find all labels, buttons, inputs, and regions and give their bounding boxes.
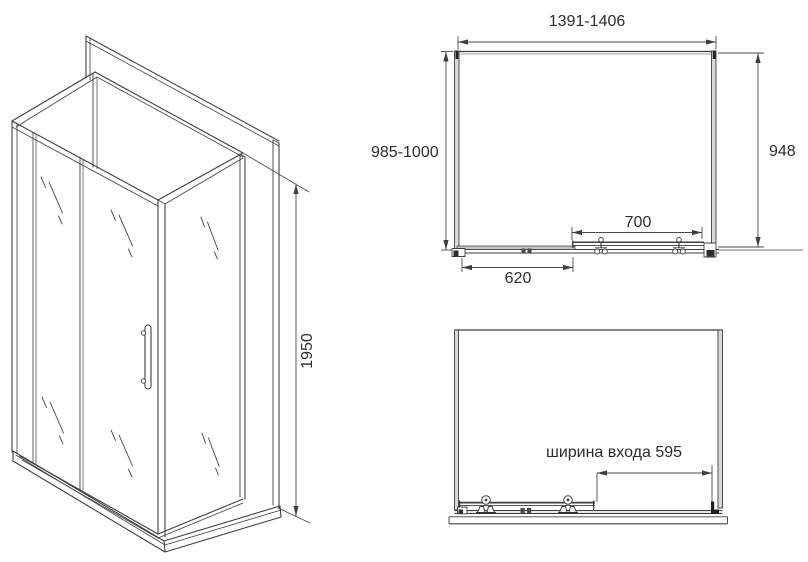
right-face-lines	[158, 153, 245, 538]
tray-lines	[13, 451, 281, 552]
front-elevation-view	[449, 330, 728, 524]
entrance-dimension-lines	[597, 465, 712, 502]
plan-width-dimension-label: 1391-1406	[549, 13, 626, 31]
front-sliding-door	[458, 501, 720, 515]
plan-door-width-dimension-label: 700	[625, 214, 652, 232]
height-dimension-label: 1950	[299, 333, 317, 369]
isometric-view	[12, 36, 310, 552]
entrance-width-dimension-label: ширина входа 595	[546, 444, 682, 462]
plan-view	[441, 36, 803, 272]
plan-fixed-panel	[452, 246, 575, 257]
back-panel-lines	[86, 36, 279, 508]
technical-drawing-page: 1391-1406 985-1000 948 700 620 ширина вх…	[0, 0, 808, 562]
front-frame	[449, 330, 728, 524]
plan-fixed-panel-dimension-label: 620	[505, 270, 532, 288]
plan-depth-dimension-label: 985-1000	[371, 144, 439, 162]
top-rim-lines	[12, 72, 243, 169]
plan-sliding-door	[572, 241, 716, 258]
door-handle	[141, 325, 151, 389]
glass-shine-marks	[41, 177, 219, 477]
technical-drawing-svg	[0, 0, 808, 562]
plan-side-glass-dimension-label: 948	[769, 143, 796, 161]
front-face-lines	[12, 121, 165, 538]
